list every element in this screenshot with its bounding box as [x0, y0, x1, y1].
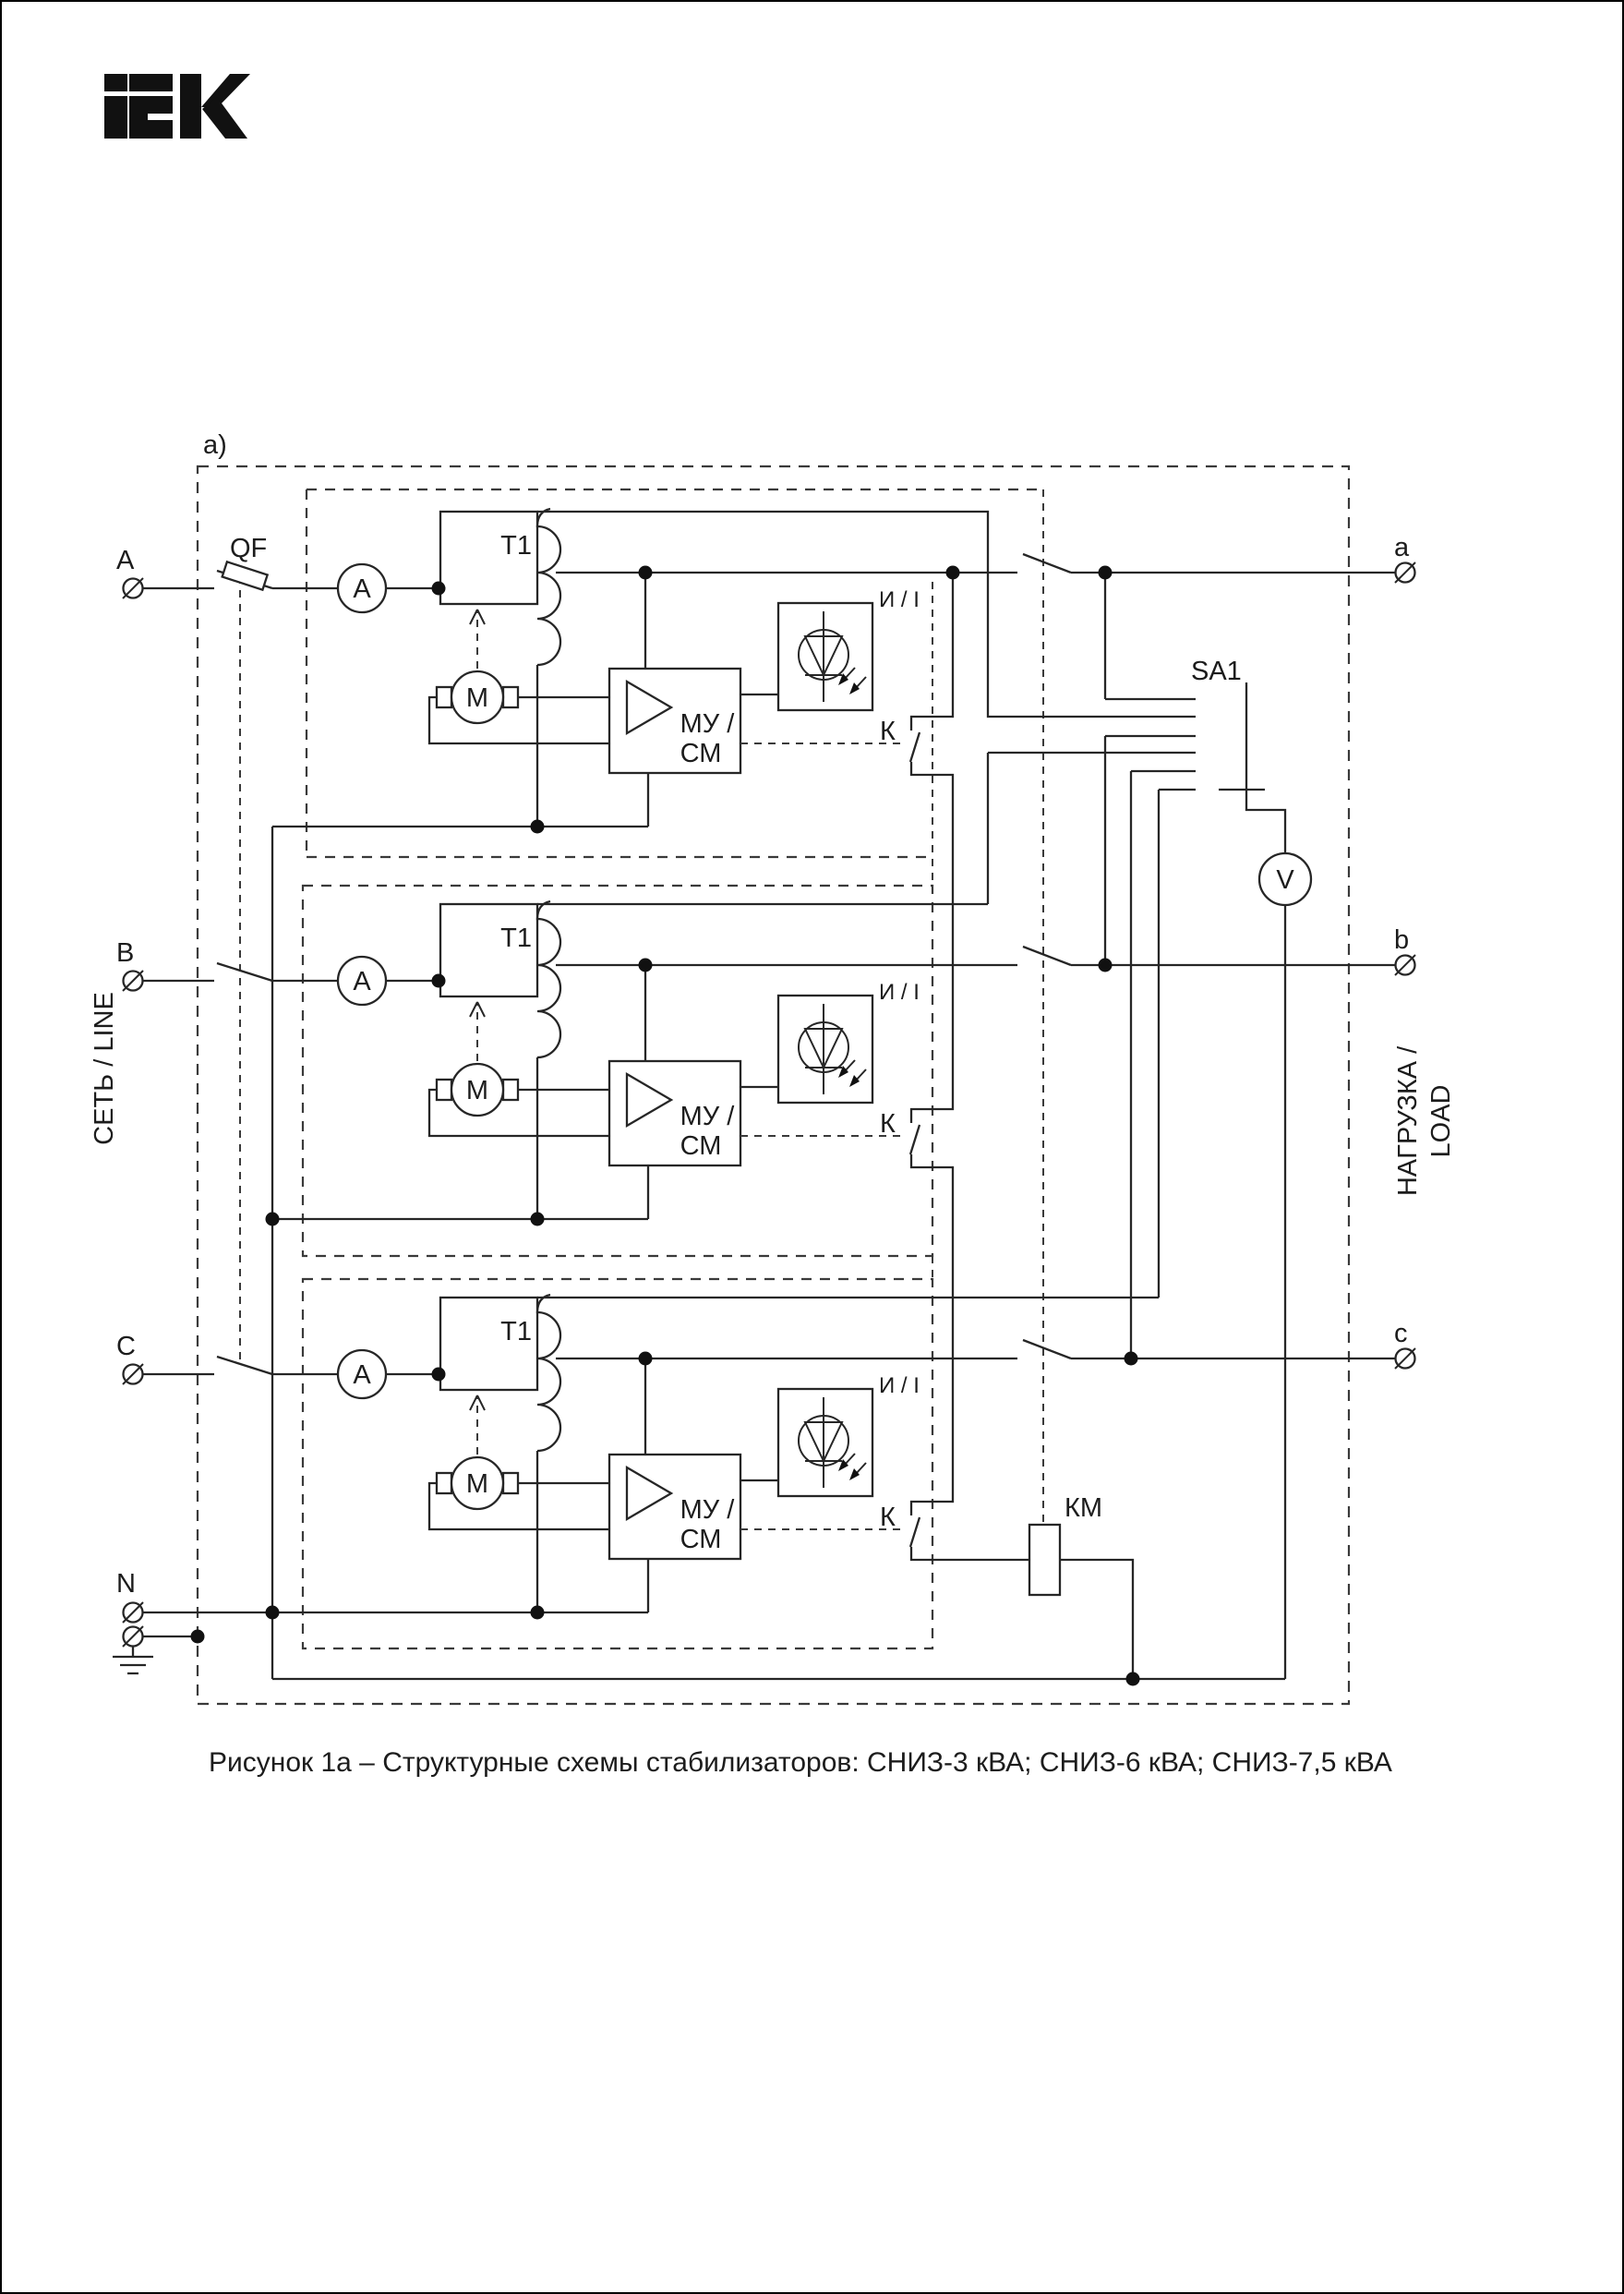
terminal-output-b: [1395, 955, 1415, 975]
terminal-input-c: [123, 1364, 143, 1384]
terminal-output-c: [1395, 1348, 1415, 1369]
figure-caption: Рисунок 1а – Структурные схемы стабилиза…: [209, 1747, 1392, 1778]
amplifier-label2-c: СМ: [680, 1525, 722, 1554]
terminal-input-a: [123, 578, 143, 598]
side-label-load-1: НАГРУЗКА /: [1393, 1045, 1423, 1196]
document-page: а) QF А В С N a b c T1 А М МУ / СМ И / I…: [0, 0, 1624, 2294]
input-terminal-label-c: С: [116, 1332, 136, 1361]
ammeter-label-c: А: [353, 1360, 371, 1390]
output-terminal-label-a: a: [1394, 533, 1410, 562]
motor-label-a: М: [466, 683, 488, 713]
neutral-return-wiring: [272, 827, 1285, 1679]
motor-label-b: М: [466, 1076, 488, 1105]
n-pe-wires: [142, 1612, 272, 1636]
selector-label: SA1: [1191, 657, 1242, 686]
phase-module-c: [142, 1295, 1396, 1620]
relay-contact-label-a: К: [880, 717, 896, 746]
contactor-label: КМ: [1065, 1493, 1102, 1523]
stabilizer-structural-diagram: а) QF А В С N a b c T1 А М МУ / СМ И / I…: [2, 2, 1624, 2294]
amplifier-label1-c: МУ /: [680, 1495, 736, 1525]
output-terminal-label-c: c: [1394, 1319, 1408, 1348]
terminal-neutral: [123, 1602, 143, 1623]
side-label-line: СЕТЬ / LINE: [90, 992, 119, 1145]
iek-logo: [104, 74, 250, 139]
voltmeter-label: V: [1276, 865, 1294, 895]
motor-label-c: М: [466, 1469, 488, 1499]
indicator-label-a: И / I: [879, 587, 920, 612]
figure-marker: а): [203, 430, 227, 460]
breaker-label: QF: [230, 534, 267, 563]
transformer-label-b: T1: [500, 924, 532, 953]
indicator-label-c: И / I: [879, 1373, 920, 1398]
terminal-input-b: [123, 971, 143, 991]
input-terminal-label-n: N: [116, 1569, 136, 1599]
breaker-qf-element: [223, 561, 268, 589]
amplifier-label1-a: МУ /: [680, 709, 736, 739]
contactor-coil-km: [1029, 1525, 1060, 1595]
output-terminal-label-b: b: [1394, 925, 1409, 955]
ammeter-label-b: А: [353, 967, 371, 996]
input-terminal-label-b: В: [116, 938, 134, 968]
phase-module-b: [142, 901, 1396, 1226]
relay-contact-label-c: К: [880, 1503, 896, 1532]
ground-icon: [113, 1646, 153, 1673]
transformer-label-c: T1: [500, 1317, 532, 1346]
cabinet-outline: [198, 466, 1349, 1704]
enclosure-boxes: [198, 466, 1349, 1704]
terminal-pe: [123, 1626, 143, 1647]
transformer-label-a: T1: [500, 531, 532, 561]
amplifier-label2-a: СМ: [680, 739, 722, 768]
amplifier-label1-b: МУ /: [680, 1102, 736, 1131]
ammeter-label-a: А: [353, 574, 371, 604]
input-terminal-label-a: А: [116, 546, 135, 575]
relay-contact-label-b: К: [880, 1109, 896, 1139]
selector-sa1: [1219, 682, 1285, 853]
terminal-output-a: [1395, 562, 1415, 583]
terminals: [123, 562, 1415, 1647]
side-label-load-2: LOAD: [1426, 1085, 1456, 1158]
indicator-label-b: И / I: [879, 980, 920, 1005]
amplifier-label2-b: СМ: [680, 1131, 722, 1161]
